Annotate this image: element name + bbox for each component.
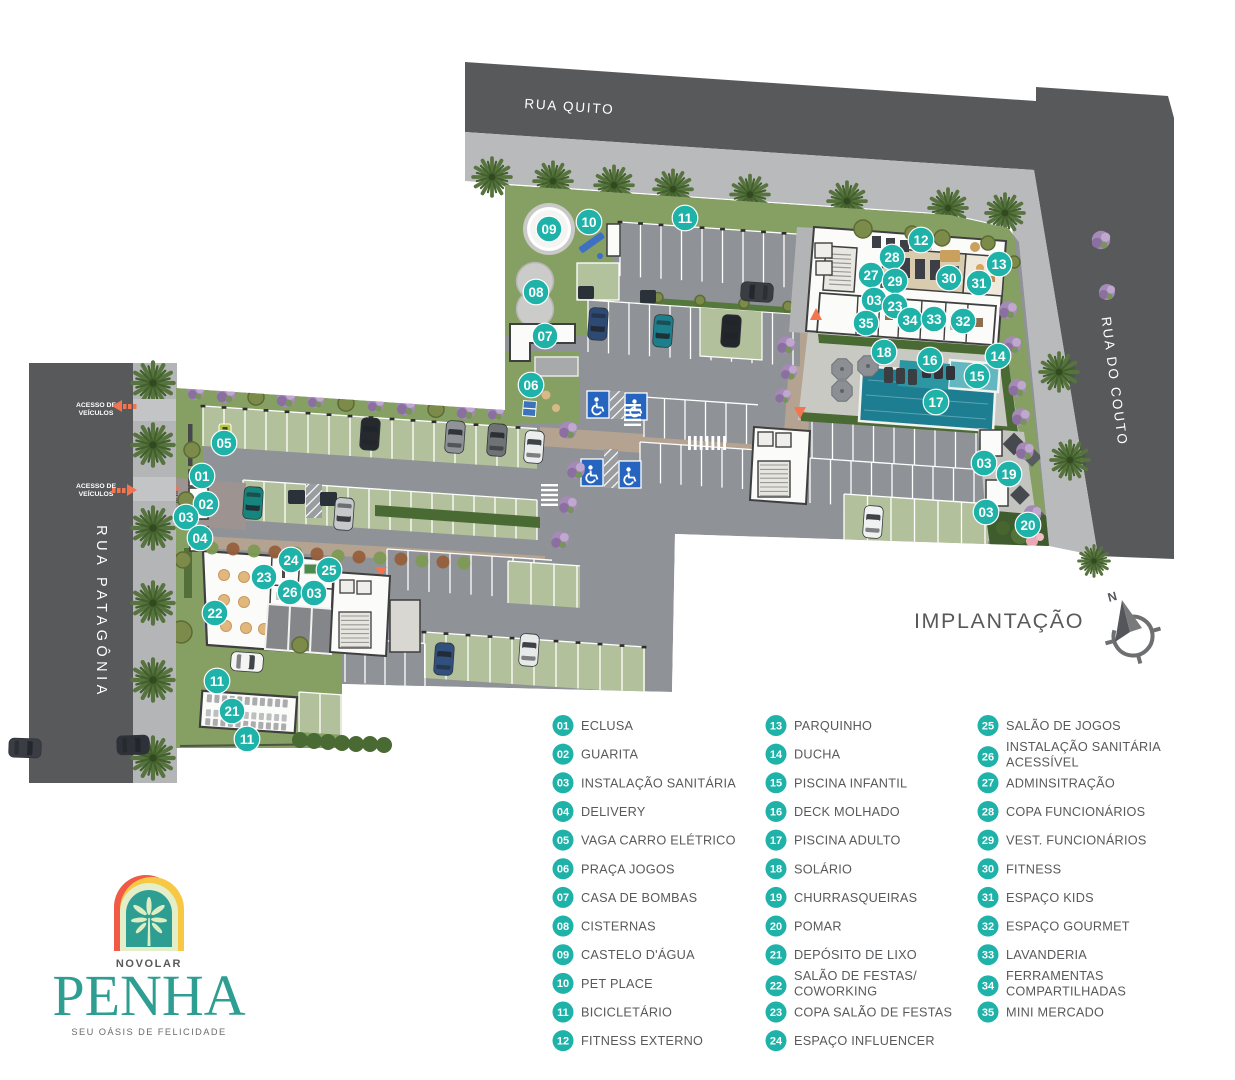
svg-text:26: 26	[982, 751, 994, 763]
svg-text:32: 32	[955, 314, 970, 329]
svg-text:15: 15	[770, 778, 782, 790]
svg-text:30: 30	[941, 271, 956, 286]
svg-text:05: 05	[557, 835, 569, 847]
svg-text:11: 11	[210, 674, 225, 689]
svg-text:06: 06	[557, 864, 569, 876]
svg-text:COMPARTILHADAS: COMPARTILHADAS	[1006, 985, 1126, 999]
svg-text:COPA SALÃO DE FESTAS: COPA SALÃO DE FESTAS	[794, 1006, 952, 1020]
svg-text:29: 29	[982, 835, 994, 847]
svg-text:ESPAÇO KIDS: ESPAÇO KIDS	[1006, 891, 1094, 905]
svg-text:11: 11	[240, 732, 255, 747]
svg-text:15: 15	[969, 369, 985, 384]
svg-text:MINI MERCADO: MINI MERCADO	[1006, 1006, 1104, 1020]
svg-text:31: 31	[971, 276, 987, 291]
svg-text:07: 07	[537, 329, 552, 344]
svg-text:14: 14	[770, 749, 783, 761]
svg-text:18: 18	[876, 345, 892, 360]
svg-text:11: 11	[557, 1007, 569, 1019]
svg-text:INSTALAÇÃO SANITÁRIA: INSTALAÇÃO SANITÁRIA	[1006, 739, 1161, 754]
svg-text:03: 03	[306, 586, 322, 601]
svg-text:DELIVERY: DELIVERY	[581, 805, 646, 819]
svg-text:03: 03	[178, 510, 194, 525]
svg-text:VAGA CARRO ELÉTRICO: VAGA CARRO ELÉTRICO	[581, 833, 736, 848]
svg-text:ADMINSITRAÇÃO: ADMINSITRAÇÃO	[1006, 776, 1115, 790]
svg-text:COWORKING: COWORKING	[794, 985, 877, 999]
svg-text:PENHA: PENHA	[52, 963, 245, 1028]
svg-text:10: 10	[581, 215, 596, 230]
svg-text:FERRAMENTAS: FERRAMENTAS	[1006, 969, 1104, 983]
svg-text:08: 08	[528, 285, 544, 300]
svg-text:24: 24	[770, 1035, 783, 1047]
svg-text:28: 28	[982, 806, 994, 818]
svg-text:17: 17	[770, 835, 782, 847]
svg-text:FITNESS: FITNESS	[1006, 862, 1061, 876]
svg-text:08: 08	[557, 921, 569, 933]
svg-text:PISCINA ADULTO: PISCINA ADULTO	[794, 834, 901, 848]
svg-text:22: 22	[207, 606, 222, 621]
svg-text:35: 35	[858, 316, 874, 331]
svg-text:13: 13	[770, 720, 782, 732]
svg-text:FITNESS EXTERNO: FITNESS EXTERNO	[581, 1034, 703, 1048]
svg-text:19: 19	[1001, 467, 1016, 482]
svg-text:VEÍCULOS: VEÍCULOS	[79, 408, 114, 417]
svg-text:SOLÁRIO: SOLÁRIO	[794, 861, 852, 876]
svg-text:CHURRASQUEIRAS: CHURRASQUEIRAS	[794, 891, 917, 905]
svg-text:16: 16	[770, 806, 782, 818]
svg-text:24: 24	[283, 553, 299, 568]
svg-text:ESPAÇO GOURMET: ESPAÇO GOURMET	[1006, 920, 1130, 934]
svg-text:01: 01	[194, 469, 210, 484]
svg-text:10: 10	[557, 978, 569, 990]
svg-text:POMAR: POMAR	[794, 920, 842, 934]
svg-text:DUCHA: DUCHA	[794, 748, 841, 762]
svg-text:28: 28	[884, 250, 900, 265]
svg-text:20: 20	[1020, 518, 1035, 533]
svg-text:33: 33	[926, 312, 942, 327]
svg-text:DECK MOLHADO: DECK MOLHADO	[794, 805, 900, 819]
svg-text:34: 34	[982, 981, 995, 993]
svg-text:25: 25	[982, 720, 994, 732]
svg-text:21: 21	[224, 704, 240, 719]
svg-text:03: 03	[976, 456, 992, 471]
svg-text:ECLUSA: ECLUSA	[581, 719, 634, 733]
svg-text:07: 07	[557, 892, 569, 904]
svg-text:32: 32	[982, 921, 994, 933]
svg-text:CASTELO D'ÁGUA: CASTELO D'ÁGUA	[581, 947, 695, 962]
svg-text:CISTERNAS: CISTERNAS	[581, 920, 656, 934]
svg-text:17: 17	[928, 395, 943, 410]
svg-text:RUA PATAGÔNIA: RUA PATAGÔNIA	[93, 525, 110, 699]
svg-text:09: 09	[541, 222, 556, 237]
svg-text:27: 27	[982, 778, 994, 790]
svg-text:PARQUINHO: PARQUINHO	[794, 719, 872, 733]
svg-text:19: 19	[770, 892, 782, 904]
svg-text:02: 02	[557, 749, 569, 761]
svg-text:SALÃO DE JOGOS: SALÃO DE JOGOS	[1006, 719, 1121, 733]
svg-text:PET PLACE: PET PLACE	[581, 977, 653, 991]
svg-text:03: 03	[557, 778, 569, 790]
svg-text:30: 30	[982, 864, 994, 876]
svg-text:SEU OÁSIS DE FELICIDADE: SEU OÁSIS DE FELICIDADE	[71, 1027, 226, 1037]
svg-text:01: 01	[557, 720, 569, 732]
svg-text:22: 22	[770, 981, 782, 993]
svg-text:12: 12	[913, 233, 928, 248]
svg-text:COPA FUNCIONÁRIOS: COPA FUNCIONÁRIOS	[1006, 804, 1145, 819]
svg-text:14: 14	[990, 349, 1006, 364]
svg-text:18: 18	[770, 864, 782, 876]
svg-text:35: 35	[982, 1007, 994, 1019]
svg-text:20: 20	[770, 921, 782, 933]
svg-text:04: 04	[557, 806, 570, 818]
svg-text:VEÍCULOS: VEÍCULOS	[79, 489, 114, 498]
svg-text:34: 34	[902, 313, 918, 328]
svg-text:SALÃO DE FESTAS/: SALÃO DE FESTAS/	[794, 969, 917, 983]
svg-text:12: 12	[557, 1035, 569, 1047]
svg-text:GUARITA: GUARITA	[581, 748, 638, 762]
svg-text:04: 04	[192, 531, 208, 546]
svg-text:13: 13	[991, 257, 1007, 272]
svg-text:26: 26	[282, 585, 298, 600]
svg-text:25: 25	[321, 563, 337, 578]
svg-text:VEST. FUNCIONÁRIOS: VEST. FUNCIONÁRIOS	[1006, 833, 1147, 848]
svg-text:03: 03	[978, 505, 994, 520]
svg-text:11: 11	[678, 211, 693, 226]
svg-text:31: 31	[982, 892, 994, 904]
svg-text:03: 03	[866, 293, 882, 308]
svg-text:PRAÇA JOGOS: PRAÇA JOGOS	[581, 862, 675, 876]
svg-text:16: 16	[922, 353, 938, 368]
svg-text:LAVANDERIA: LAVANDERIA	[1006, 948, 1087, 962]
svg-text:DEPÓSITO DE LIXO: DEPÓSITO DE LIXO	[794, 947, 917, 962]
svg-text:BICICLETÁRIO: BICICLETÁRIO	[581, 1005, 672, 1020]
svg-text:IMPLANTAÇÃO: IMPLANTAÇÃO	[914, 608, 1084, 633]
svg-text:INSTALAÇÃO SANITÁRIA: INSTALAÇÃO SANITÁRIA	[581, 775, 736, 790]
svg-text:ESPAÇO INFLUENCER: ESPAÇO INFLUENCER	[794, 1034, 935, 1048]
svg-text:ACESSO DE: ACESSO DE	[76, 402, 117, 409]
svg-text:23: 23	[256, 570, 272, 585]
svg-text:09: 09	[557, 950, 569, 962]
svg-text:21: 21	[770, 950, 782, 962]
svg-text:ACESSÍVEL: ACESSÍVEL	[1006, 754, 1079, 769]
svg-text:23: 23	[770, 1007, 782, 1019]
svg-text:29: 29	[887, 274, 902, 289]
svg-text:33: 33	[982, 950, 994, 962]
svg-text:ACESSO DE: ACESSO DE	[76, 483, 117, 490]
svg-text:PISCINA INFANTIL: PISCINA INFANTIL	[794, 776, 907, 790]
svg-text:05: 05	[216, 436, 232, 451]
svg-text:CASA DE BOMBAS: CASA DE BOMBAS	[581, 891, 697, 905]
svg-text:27: 27	[863, 268, 878, 283]
svg-text:06: 06	[523, 378, 539, 393]
svg-text:02: 02	[198, 497, 213, 512]
